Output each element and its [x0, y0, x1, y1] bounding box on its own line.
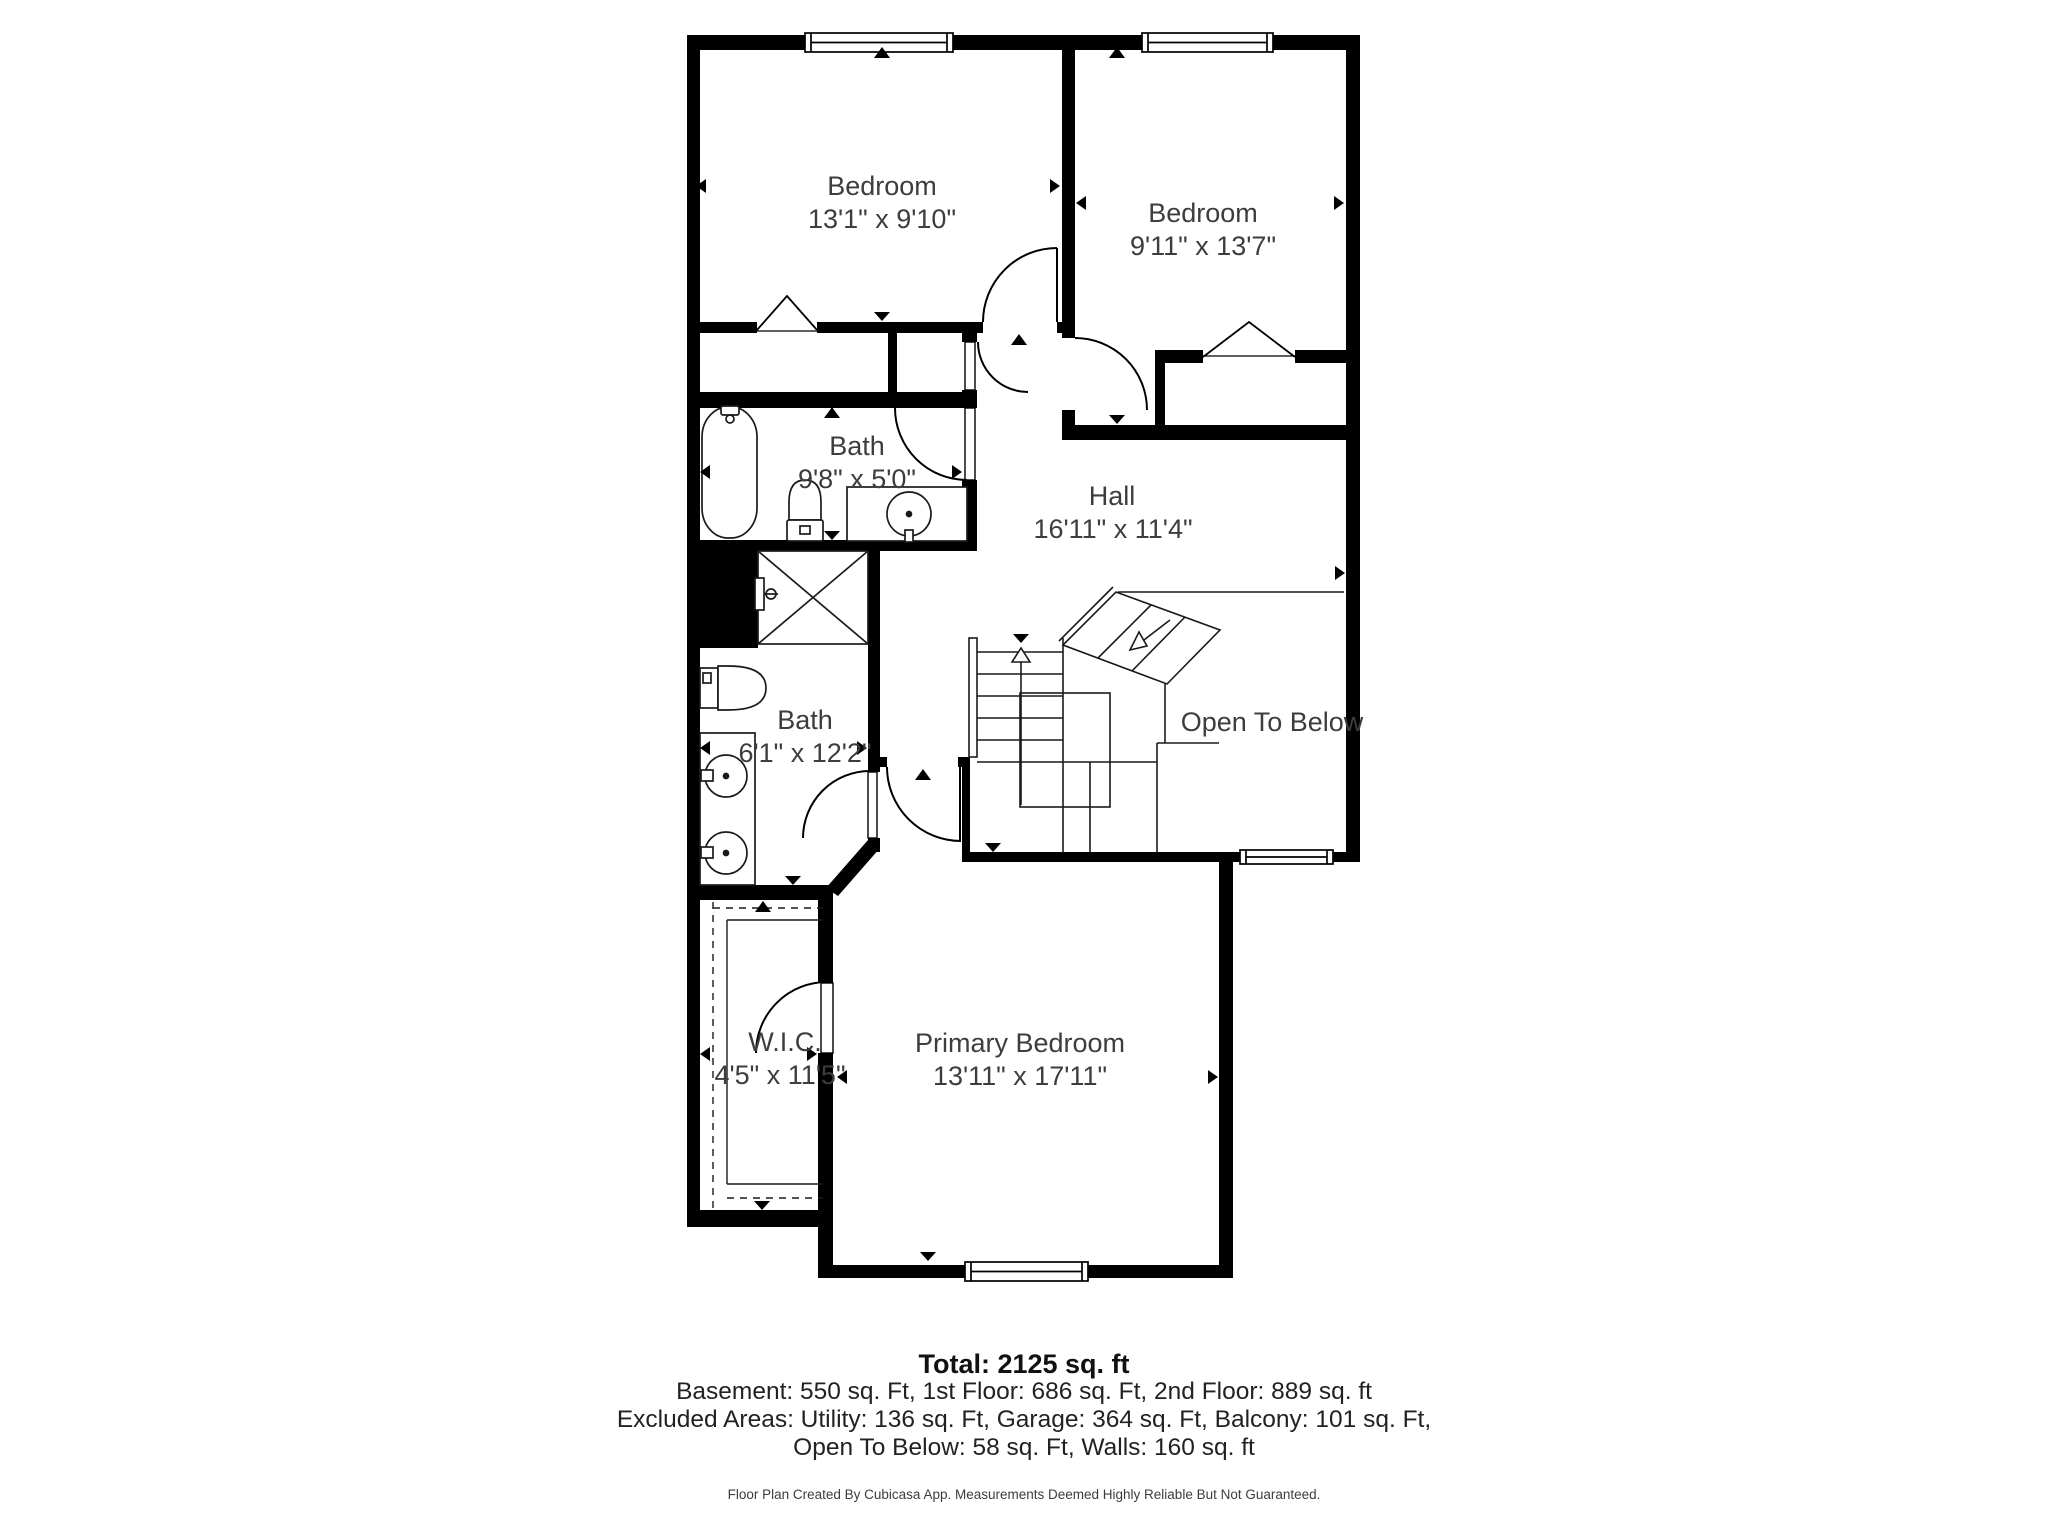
window-primary — [965, 1262, 1088, 1281]
door-arc — [978, 342, 1028, 392]
svg-text:Bedroom: Bedroom — [827, 171, 937, 201]
stairs-up-arrow-icon — [1012, 648, 1030, 805]
bathtub — [702, 406, 757, 538]
svg-text:Bath: Bath — [777, 705, 833, 735]
room-label-bath-upper: Bath 9'8" x 5'0" — [798, 431, 916, 494]
svg-text:Hall: Hall — [1089, 481, 1136, 511]
room-label-hall: Hall 16'11" x 11'4" — [1033, 481, 1192, 544]
floor-plan-page: Bedroom 13'1" x 9'10" Bedroom 9'11" x 13… — [0, 0, 2048, 1536]
toilet — [700, 666, 766, 710]
door-arc — [803, 771, 870, 838]
svg-text:13'1" x 9'10": 13'1" x 9'10" — [808, 204, 956, 234]
svg-text:16'11" x 11'4": 16'11" x 11'4" — [1033, 514, 1192, 544]
shower — [755, 551, 868, 644]
svg-text:Primary Bedroom: Primary Bedroom — [915, 1028, 1125, 1058]
floors-area-line: Basement: 550 sq. Ft, 1st Floor: 686 sq.… — [0, 1378, 2048, 1406]
room-label-bedroom-right: Bedroom 9'11" x 13'7" — [1130, 198, 1276, 261]
svg-text:6'1" x 12'2": 6'1" x 12'2" — [738, 738, 871, 768]
room-label-open-to-below: Open To Below — [1181, 707, 1364, 737]
window-bedroom-right — [1142, 33, 1273, 52]
window-bedroom-left — [805, 33, 953, 52]
door-arc — [1075, 338, 1147, 410]
sink-vanity — [847, 487, 967, 542]
door-arc — [983, 248, 1057, 322]
doors — [756, 248, 1295, 1053]
room-label-bedroom-left: Bedroom 13'1" x 9'10" — [808, 171, 956, 234]
area-summary: Total: 2125 sq. ft Basement: 550 sq. Ft,… — [0, 1350, 2048, 1462]
stairs-turn-arrow-icon — [1130, 620, 1170, 650]
total-area: Total: 2125 sq. ft — [0, 1350, 2048, 1378]
svg-text:Open To Below: Open To Below — [1181, 707, 1364, 737]
svg-text:13'11" x 17'11": 13'11" x 17'11" — [933, 1061, 1107, 1091]
svg-text:Bedroom: Bedroom — [1148, 198, 1258, 228]
excluded-area-line-1: Excluded Areas: Utility: 136 sq. Ft, Gar… — [0, 1406, 2048, 1434]
room-label-bath-lower: Bath 6'1" x 12'2" — [738, 705, 871, 768]
floor-plan-canvas: Bedroom 13'1" x 9'10" Bedroom 9'11" x 13… — [0, 0, 2048, 1536]
disclaimer-note: Floor Plan Created By Cubicasa App. Meas… — [0, 1487, 2048, 1502]
window-balcony — [1240, 850, 1333, 864]
svg-text:W.I.C.: W.I.C. — [748, 1027, 822, 1057]
excluded-area-line-2: Open To Below: 58 sq. Ft, Walls: 160 sq.… — [0, 1434, 2048, 1462]
svg-text:Bath: Bath — [829, 431, 885, 461]
svg-text:9'8" x 5'0": 9'8" x 5'0" — [798, 464, 916, 494]
svg-text:9'11" x 13'7": 9'11" x 13'7" — [1130, 231, 1276, 261]
svg-text:4'5" x 11'5": 4'5" x 11'5" — [714, 1060, 845, 1090]
room-label-primary-bedroom: Primary Bedroom 13'11" x 17'11" — [915, 1028, 1125, 1091]
